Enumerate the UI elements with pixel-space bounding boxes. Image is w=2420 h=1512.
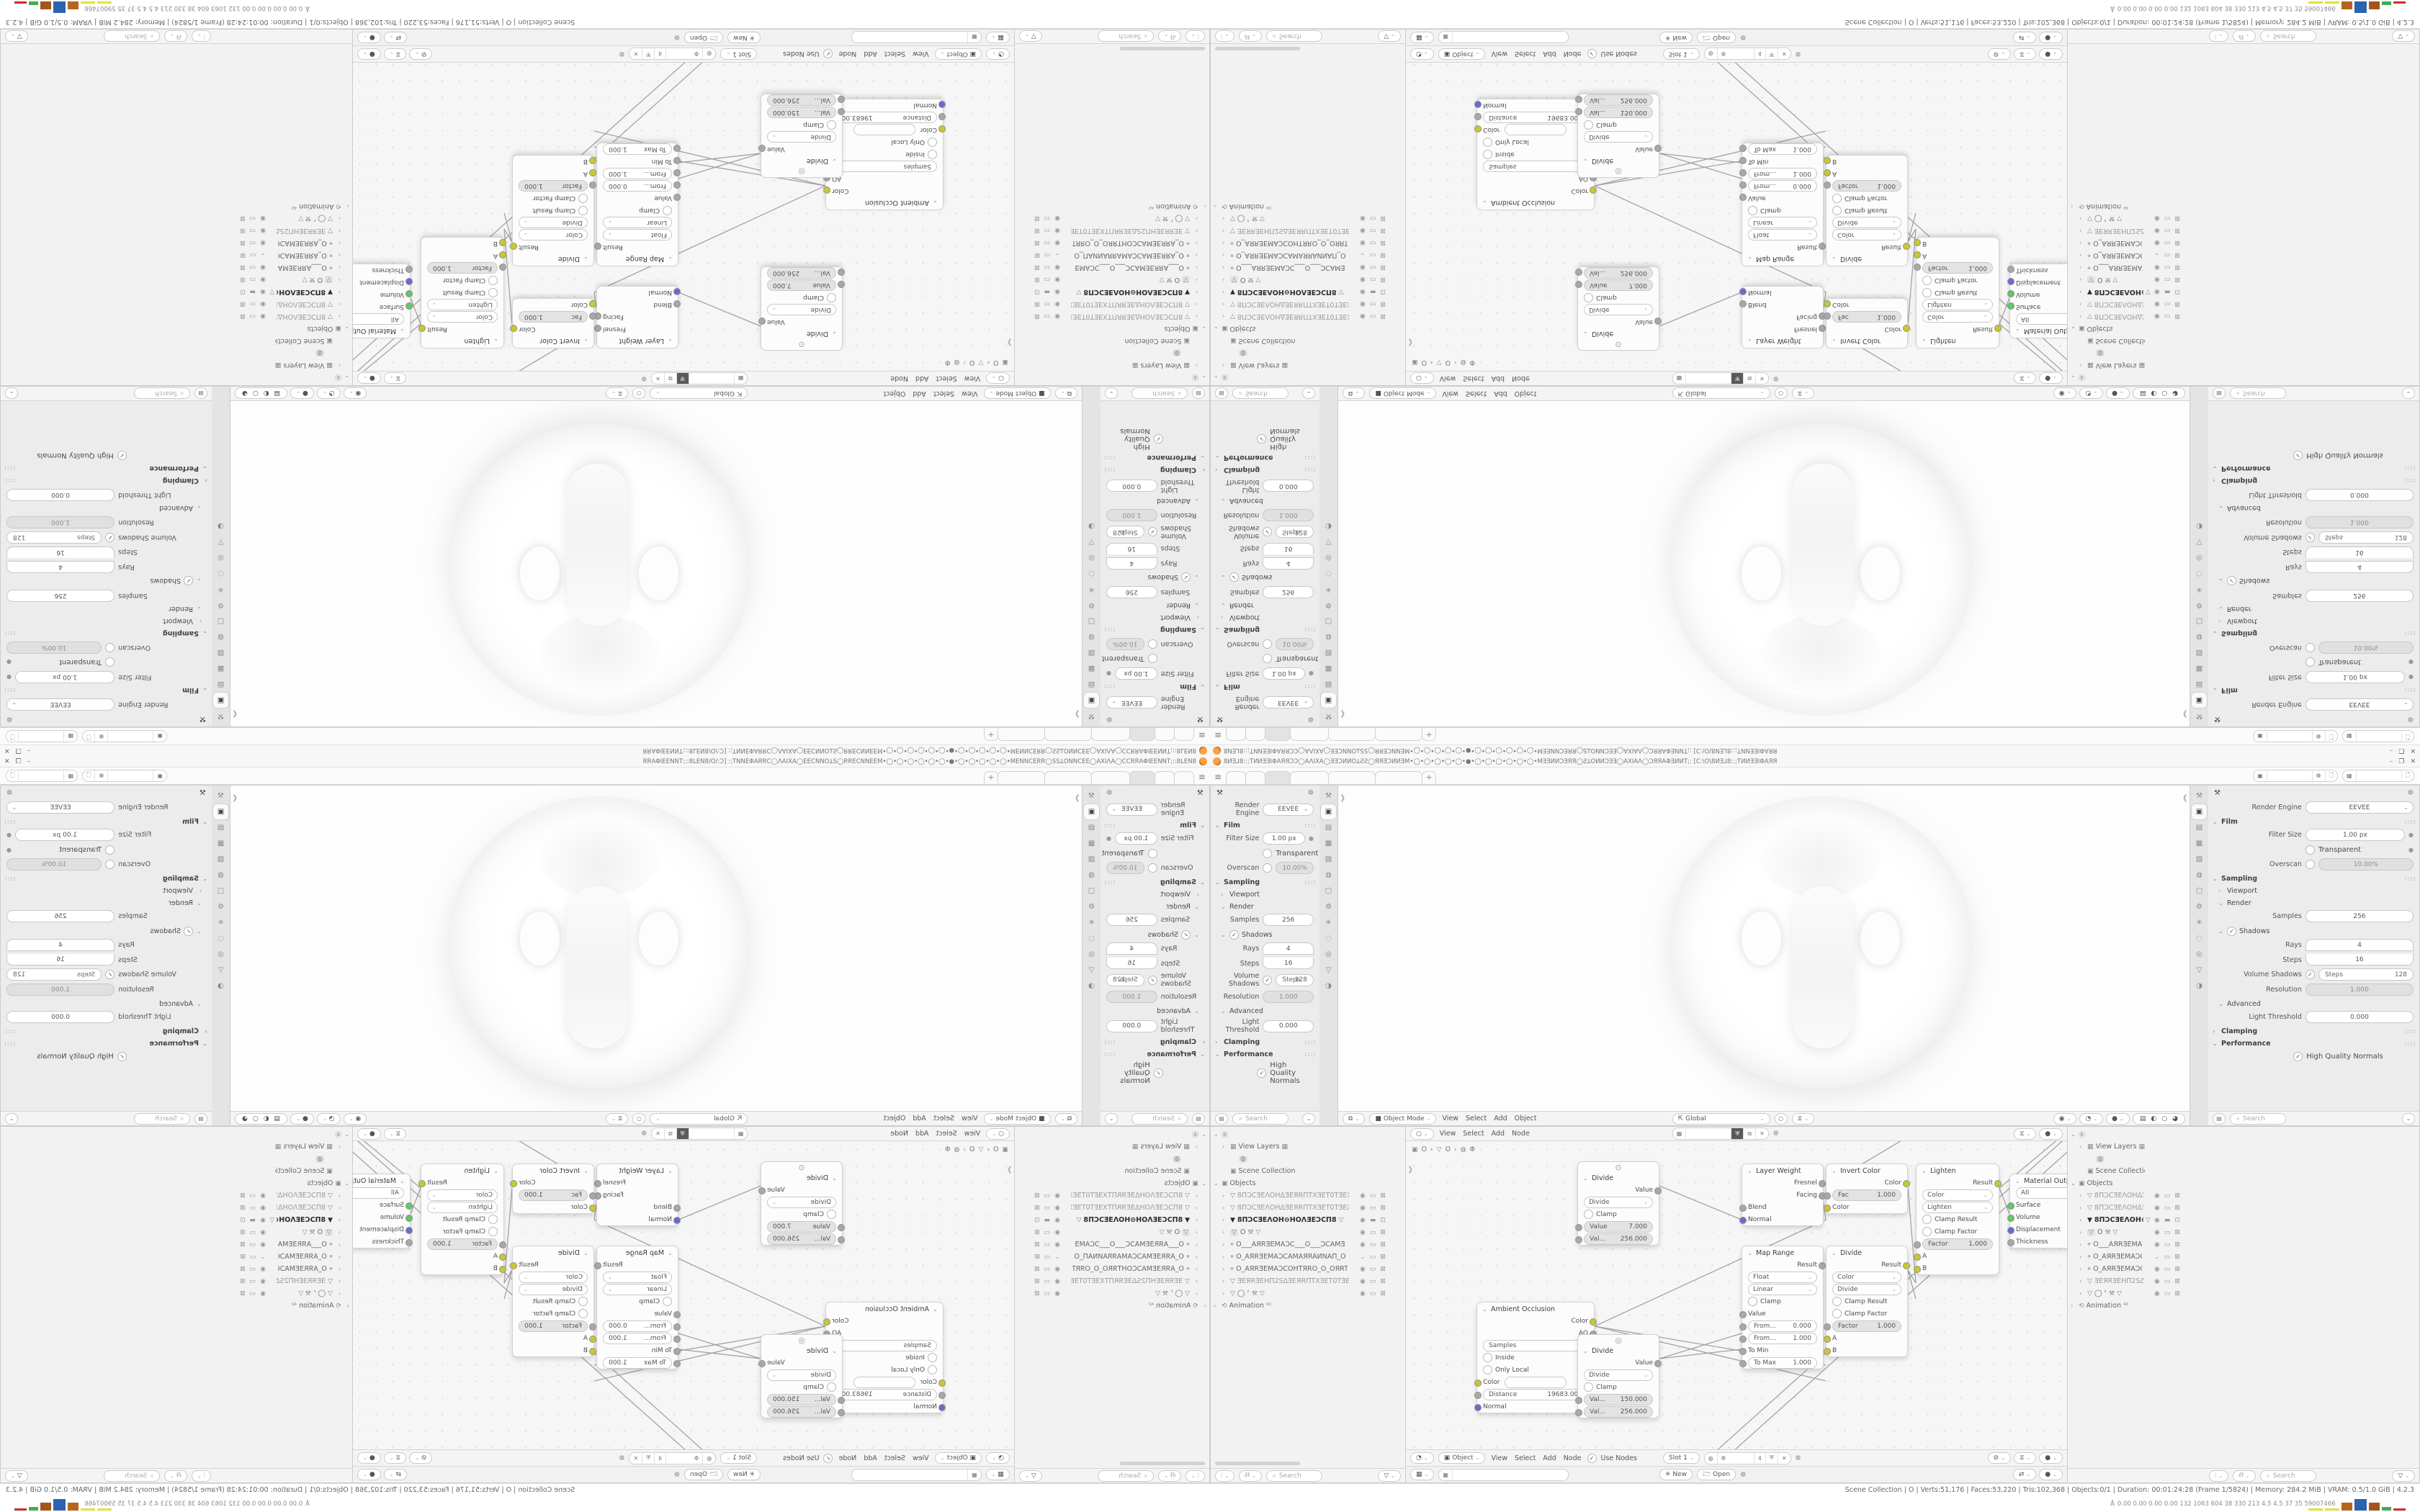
viewport-menu-add[interactable]: Add (911, 1115, 927, 1122)
shading-mode-icon[interactable]: ▤ (273, 390, 282, 397)
disable-viewport-icon[interactable]: ▭ (1044, 1192, 1051, 1200)
disable-render-icon[interactable]: ⊠ (2174, 1278, 2180, 1285)
expander-icon[interactable]: ⌄ (1221, 602, 1227, 608)
hide-eye-icon[interactable]: ◉ (1054, 264, 1060, 271)
outliner-search-input[interactable]: ⌕Search (104, 31, 160, 42)
users-count[interactable]: 4 (1754, 49, 1765, 60)
input-socket[interactable] (1739, 145, 1747, 153)
node-field[interactable]: Fac1.000 (519, 1189, 588, 1201)
node-field[interactable]: Fac1.000 (1832, 312, 1901, 323)
outliner-display-mode-dropdown[interactable]: ⫶⌄ (192, 1470, 211, 1482)
node-canvas[interactable]: ▣O›▽O›◍Φ ❱ ⊙⌄DivideValueDivide⌄ClampValu… (353, 1141, 1014, 1449)
viewport-menu-view[interactable]: View (1440, 1115, 1460, 1122)
properties-tab-9-icon[interactable]: ◌ (1321, 931, 1336, 946)
maximize-button[interactable]: ❐ (16, 747, 22, 755)
expander-icon[interactable]: ⌄ (1201, 1180, 1206, 1187)
hide-eye-icon[interactable]: ◉ (260, 1241, 266, 1248)
disable-render-icon[interactable]: ⊠ (240, 1241, 246, 1248)
outliner-display-mode-dropdown[interactable]: ⫶⌄ (1215, 31, 1234, 42)
node-map-range[interactable]: ⌄Map RangeResultFloat⌄Linear⌄ClampValueF… (596, 143, 678, 266)
workspace-tab-3[interactable] (1129, 728, 1155, 741)
input-socket[interactable] (1914, 252, 1921, 259)
node-checkbox[interactable] (1832, 1297, 1842, 1306)
blender-logo-icon[interactable] (1213, 747, 1221, 755)
outliner-row[interactable]: ›⟲Animation⁴² (1211, 200, 1405, 212)
expander-icon[interactable]: ⌄ (2218, 928, 2224, 935)
node-title[interactable]: ⌄Material Output (353, 1174, 410, 1187)
render-engine-select[interactable]: EEVEE⌄ (2305, 698, 2414, 711)
node-field[interactable]: Val...150.000 (767, 107, 836, 119)
input-socket[interactable] (1824, 158, 1831, 165)
viewport-menu-object[interactable]: Object (882, 1115, 907, 1122)
fake-user-shield-icon[interactable]: ⛨ (1765, 1453, 1778, 1464)
properties-tab-5-icon[interactable]: ◍ (1084, 629, 1099, 644)
Samples-field[interactable]: 256 (6, 590, 115, 602)
outliner-display-mode-dropdown[interactable]: ⫶⌄ (1186, 31, 1205, 42)
hide-eye-icon[interactable]: ◉ (1360, 228, 1366, 235)
node-field[interactable]: Samples1 (832, 1340, 937, 1351)
viewport-menu-add[interactable]: Add (1492, 1115, 1508, 1122)
outliner-display-mode-dropdown[interactable]: ⫶⌄ (2209, 1470, 2228, 1482)
Light Threshold-field[interactable]: 0.000 (1263, 1020, 1314, 1032)
Volume Shadows-field[interactable]: Steps128 (6, 968, 102, 981)
node-title[interactable]: ⌄Material Output (2010, 1174, 2067, 1187)
Light Threshold-field[interactable]: 0.000 (6, 1011, 115, 1023)
node-divide[interactable]: ⊙⌄DivideValueDivide⌄ClampValue7.000Val..… (1577, 1161, 1659, 1246)
scene-pin-icon[interactable]: ❁ (95, 770, 108, 781)
Overscan-checkbox[interactable] (2305, 860, 2315, 869)
disable-viewport-icon[interactable]: ▭ (1370, 1266, 1376, 1273)
hide-eye-icon[interactable]: ◉ (1360, 289, 1366, 296)
color-swatch-field[interactable] (854, 125, 916, 136)
disable-viewport-icon[interactable]: ▭ (2164, 228, 2171, 235)
expander-icon[interactable]: › (1222, 1143, 1228, 1150)
node-checkbox[interactable] (1483, 150, 1492, 159)
expander-icon[interactable]: ⌄ (2071, 1131, 2076, 1138)
node-field[interactable]: Val...256.000 (1584, 268, 1653, 279)
node-field[interactable]: Factor1.000 (519, 181, 588, 192)
expander-icon[interactable]: ⌄ (196, 928, 202, 935)
section-Film[interactable]: ⌄Film:::: (1, 815, 212, 827)
animate-dot-icon[interactable]: ● (6, 832, 12, 838)
viewport-toggle-0[interactable]: ◉⌄ (2053, 1113, 2077, 1125)
outliner-row[interactable]: ›⌖O___AЯRƎEMAƆC___O___ƆCAMƎ◉▭⊠ (1015, 261, 1209, 274)
disable-render-icon[interactable]: ⊠ (1380, 1241, 1386, 1248)
expander-icon[interactable]: › (1221, 614, 1227, 621)
node-menu-select[interactable]: Select (1461, 1130, 1485, 1138)
shading-mode-icon[interactable]: ◐ (2149, 390, 2158, 397)
disable-viewport-icon[interactable]: ▭ (2164, 1241, 2171, 1248)
expander-icon[interactable]: ⌄ (202, 465, 207, 472)
expander-icon[interactable]: › (2079, 1254, 2085, 1260)
expander-icon[interactable]: › (1192, 1241, 1198, 1248)
input-socket[interactable] (1824, 1348, 1831, 1355)
disable-viewport-icon[interactable]: ▭ (1370, 252, 1376, 259)
outliner-display-mode-dropdown[interactable]: ⫶⌄ (192, 31, 211, 42)
outliner-search-input[interactable]: ⌕Search (1098, 1470, 1154, 1482)
input-socket[interactable] (1575, 1409, 1582, 1416)
node-dropdown[interactable]: Divide⌄ (1832, 1284, 1901, 1295)
properties-display-icon[interactable]: ▤ (2213, 388, 2226, 400)
view-layer-selector[interactable]: ▦ 🗋 (6, 770, 78, 782)
section-Film[interactable]: ⌄Film:::: (1101, 681, 1209, 693)
node-layer-weight[interactable]: ⌄Layer WeightFresnelFacingBlendNormal (1742, 1164, 1824, 1226)
view-layer-new-icon[interactable]: 🗋 (2401, 770, 2414, 781)
outliner-row[interactable]: ◍ (1015, 1153, 1209, 1165)
node-canvas[interactable]: ▣O›▽O›◍Φ ❱ ⊙⌄DivideValueDivide⌄ClampValu… (1406, 1141, 2067, 1449)
viewport-toggle-2[interactable]: ●⌄ (290, 1113, 314, 1125)
expander-icon[interactable]: ⌄ (1214, 1180, 1219, 1187)
Overscan-field[interactable]: 10.00% (1106, 638, 1144, 650)
node-title[interactable]: ⌄Divide (1578, 1344, 1659, 1356)
collapse-icon[interactable]: ⌄ (1583, 1175, 1589, 1182)
Transparent-checkbox[interactable] (1148, 849, 1157, 858)
workspace-tab-1[interactable] (1174, 728, 1194, 741)
unlink-icon[interactable]: ✕ (1755, 373, 1768, 384)
node-checkbox[interactable] (1922, 276, 1932, 285)
disable-render-icon[interactable]: ⊠ (1034, 228, 1040, 235)
node-material-output[interactable]: ⌄Material OutputAll⌄SurfaceVolumeDisplac… (2009, 264, 2067, 338)
copy-icon[interactable]: ⧉ (1743, 373, 1755, 384)
hide-eye-icon[interactable]: ◉ (1054, 301, 1060, 308)
Samples-field[interactable]: 256 (1106, 586, 1157, 598)
outliner-filter-person-dropdown[interactable]: ⛜⌄ (2233, 31, 2256, 42)
shading-mode-icon[interactable]: ◕ (2171, 390, 2179, 397)
output-socket[interactable] (758, 1360, 766, 1367)
properties-tab-2-icon[interactable]: ▤ (1321, 677, 1336, 692)
disable-render-icon[interactable]: ⊠ (240, 1254, 246, 1261)
disable-render-icon[interactable]: ⊡ (1380, 289, 1386, 296)
subsection-Render[interactable]: ⌄Render (1211, 600, 1319, 612)
disable-render-icon[interactable]: ⊠ (1380, 1229, 1386, 1236)
outliner-row[interactable]: ◍ (2068, 1153, 2419, 1165)
disable-render-icon[interactable]: ⊠ (1034, 276, 1040, 284)
collapse-icon[interactable]: ⌄ (1747, 338, 1753, 344)
properties-tab-12-icon[interactable]: ◑ (213, 518, 228, 534)
outliner-filter-button[interactable]: ▽⌄ (1378, 1470, 1401, 1482)
properties-tab-0-icon[interactable]: ⚒ (213, 708, 228, 724)
disable-render-icon[interactable]: ⊠ (1380, 264, 1386, 271)
node-field[interactable]: From...1.000 (1748, 1333, 1817, 1344)
disable-viewport-icon[interactable]: ▭ (2164, 276, 2171, 284)
input-socket[interactable] (1824, 1336, 1831, 1343)
expander-icon[interactable]: › (1222, 313, 1228, 320)
disable-render-icon[interactable]: ⊡ (1380, 1217, 1386, 1224)
properties-tab-11-icon[interactable]: ▽ (2192, 534, 2207, 549)
expander-icon[interactable]: › (2071, 203, 2076, 210)
section-Performance[interactable]: ⌄Performance:::: (1211, 452, 1319, 464)
expander-icon[interactable]: › (1192, 1266, 1198, 1272)
disable-viewport-icon[interactable]: ▭ (2164, 1192, 2171, 1200)
node-material-output[interactable]: ⌄Material OutputAll⌄SurfaceVolumeDisplac… (353, 264, 411, 338)
expander-icon[interactable]: › (1222, 1192, 1228, 1199)
disable-viewport-icon[interactable]: ▭ (250, 1229, 256, 1236)
input-socket[interactable] (838, 1224, 845, 1231)
hide-eye-icon[interactable]: ◉ (1360, 1192, 1366, 1200)
node-material-output[interactable]: ⌄Material OutputAll⌄SurfaceVolumeDisplac… (353, 1174, 411, 1248)
shader-header-toggle[interactable]: ●⌄ (2039, 48, 2063, 60)
properties-tab-0-icon[interactable]: ⚒ (2192, 788, 2207, 804)
properties-tab-7-icon[interactable]: ⚙ (213, 598, 228, 613)
fake-user-shield-icon[interactable]: ⛨ (642, 49, 655, 60)
expander-icon[interactable]: ⌄ (2218, 1001, 2224, 1007)
collapse-icon[interactable]: ⌄ (2015, 1178, 2021, 1184)
subsection-Advanced[interactable]: ⌄Advanced (2208, 997, 2419, 1009)
fake-user-shield-icon[interactable]: ⛨ (642, 1453, 655, 1464)
shader-header-toggle[interactable]: ⊘⌄ (409, 1452, 432, 1464)
disable-render-icon[interactable]: ⊠ (1380, 1278, 1386, 1285)
viewport-menu-select[interactable]: Select (1464, 390, 1488, 397)
node-checkbox[interactable] (488, 1227, 498, 1236)
outliner-row[interactable]: ›⟲Animation⁴² (2068, 200, 2419, 212)
Overscan-checkbox[interactable] (105, 860, 115, 869)
properties-tab-1-icon[interactable]: ▣ (1084, 804, 1099, 819)
expander-icon[interactable]: ⌄ (1199, 454, 1205, 461)
properties-tab-7-icon[interactable]: ⚙ (1321, 598, 1336, 613)
checkbox-checked[interactable]: ✓ (184, 927, 193, 936)
disable-render-icon[interactable]: ⊡ (240, 289, 246, 296)
node-divide[interactable]: ⊙⌄DivideValueDivide⌄ClampValue7.000Val..… (761, 266, 843, 351)
scene-selector[interactable]: ▣ ❁ 🗋 (2253, 730, 2338, 742)
animate-dot-icon[interactable]: ● (6, 660, 12, 666)
input-socket[interactable] (1824, 313, 1831, 320)
section-Clamping[interactable]: ›Clamping:::: (2208, 475, 2419, 487)
input-socket[interactable] (2007, 1215, 2015, 1222)
input-socket[interactable] (1474, 114, 1482, 121)
input-socket[interactable] (1575, 1397, 1582, 1404)
node-field[interactable]: Factor1.000 (519, 1320, 588, 1332)
slot-dropdown[interactable]: Slot 1⌄ (1663, 1452, 1700, 1464)
collapse-icon[interactable]: ⌄ (583, 1250, 588, 1256)
properties-tab-7-icon[interactable]: ⚙ (2192, 598, 2207, 613)
outliner-row[interactable]: ›⌖O___AЯRƎEMAƆC___O___ƆCAMƎ◉▭⊠ (1211, 1238, 1405, 1251)
outliner-filter-person-dropdown[interactable]: ⛜⌄ (1158, 1470, 1181, 1482)
node-map-range[interactable]: ⌄Map RangeResultFloat⌄Linear⌄ClampValueF… (1742, 1246, 1824, 1369)
expander-icon[interactable]: › (1222, 276, 1228, 283)
properties-tab-7-icon[interactable]: ⚙ (1084, 598, 1099, 613)
node-checkbox[interactable] (1584, 293, 1593, 302)
hide-eye-icon[interactable]: ◉ (260, 1192, 266, 1200)
properties-tab-8-icon[interactable]: ✳ (1321, 915, 1336, 930)
outliner-row[interactable]: ›▽8ПƆCƎEΛOHΔƎEЯRПTXƎET0TƎEXT◉▭⊠ (1211, 1189, 1405, 1202)
pin-icon[interactable]: ❁ (1796, 50, 1801, 58)
input-socket[interactable] (1575, 96, 1582, 104)
input-socket[interactable] (589, 1205, 596, 1212)
outliner-row[interactable]: ◍ (2068, 347, 2419, 359)
checkbox-checked[interactable]: ✓ (184, 576, 193, 585)
disable-render-icon[interactable]: ⊠ (1034, 1241, 1040, 1248)
properties-tab-11-icon[interactable]: ▽ (213, 963, 228, 978)
collapse-icon[interactable]: ⌄ (1922, 338, 1927, 344)
output-socket[interactable] (1903, 1180, 1910, 1187)
node-field[interactable]: To Max1.000 (603, 144, 672, 156)
expander-icon[interactable]: › (335, 228, 341, 234)
shader-menu-view[interactable]: View (1489, 1454, 1509, 1462)
output-socket[interactable] (510, 243, 517, 251)
disable-viewport-icon[interactable]: ▭ (1370, 264, 1376, 271)
section-Performance[interactable]: ⌄Performance:::: (1211, 1048, 1319, 1060)
node-field[interactable]: Samples1 (832, 161, 937, 173)
properties-tab-0-icon[interactable]: ⚒ (213, 788, 228, 804)
shader-header-toggle[interactable]: ●⌄ (357, 48, 381, 60)
outliner-row[interactable]: ›⌖O___AЯRƎEMAƆC___O___ƆCAMƎ◉▭⊠ (1, 1238, 352, 1251)
collapse-icon[interactable]: ⌄ (1832, 256, 1837, 262)
outliner-row[interactable]: ⌄Ⓑ (1211, 1128, 1405, 1140)
section-Performance[interactable]: ⌄Performance:::: (1, 463, 212, 475)
node-menu-select[interactable]: Select (1461, 374, 1485, 382)
node-header-toggle[interactable]: ⧖⌄ (2014, 373, 2036, 384)
outliner-row[interactable]: ›▼8ПƆCƎEΛOH⊖HOΛƎEƆCП8▽◉▬⊡ (1015, 1214, 1209, 1226)
input-socket[interactable] (405, 1239, 413, 1246)
Samples-field[interactable]: 256 (2305, 910, 2414, 922)
node-canvas[interactable]: ▣O›▽O›◍Φ ❱ ⊙⌄DivideValueDivide⌄ClampValu… (353, 63, 1014, 371)
input-socket[interactable] (499, 1241, 506, 1248)
disable-viewport-icon[interactable]: ▭ (2164, 240, 2171, 247)
collapse-icon[interactable]: ⌄ (831, 330, 837, 337)
node-title[interactable]: ⌄Material Output (353, 325, 410, 338)
node-checkbox[interactable] (1922, 288, 1932, 297)
animate-dot-icon[interactable]: ● (6, 847, 12, 853)
input-socket[interactable] (1824, 301, 1831, 308)
mode-dropdown[interactable]: ■Object Mode⌄ (1369, 1113, 1436, 1125)
hide-eye-icon[interactable]: ◉ (1054, 1290, 1060, 1297)
Steps-field[interactable]: 16 (6, 954, 115, 966)
properties-tab-10-icon[interactable]: ◎ (213, 947, 228, 962)
node-field[interactable]: Distance19683.000 (832, 112, 937, 124)
input-socket[interactable] (1739, 1311, 1747, 1318)
material-browse-icon[interactable]: ◍ (703, 49, 715, 60)
orientation-dropdown[interactable]: ⇱Global⌄ (1672, 388, 1770, 400)
Overscan-field[interactable]: 10.00% (1276, 638, 1314, 650)
properties-tab-11-icon[interactable]: ▽ (213, 534, 228, 549)
Resolution-field[interactable]: 1.000 (1106, 991, 1157, 1003)
horizontal-scrollbar[interactable] (1120, 47, 1205, 50)
expander-icon[interactable]: › (1192, 252, 1198, 258)
collapse-icon[interactable]: ⌄ (831, 1175, 837, 1182)
input-socket[interactable] (499, 1254, 506, 1261)
expander-icon[interactable]: › (344, 203, 349, 210)
hide-eye-icon[interactable]: ◉ (2154, 1241, 2160, 1248)
input-socket[interactable] (1824, 170, 1831, 177)
collapse-icon[interactable]: ⌄ (667, 1250, 673, 1256)
Rays-field[interactable]: 4 (1106, 942, 1157, 955)
hide-eye-icon[interactable]: ◉ (260, 301, 266, 308)
new-image-button[interactable]: ✳ New (1659, 32, 1693, 43)
disable-viewport-icon[interactable]: ▬ (1044, 1217, 1051, 1224)
collapse-icon[interactable]: ⌄ (1583, 158, 1589, 164)
node-dropdown[interactable]: Color⌄ (1832, 230, 1901, 241)
material-browse-icon[interactable]: ◍ (1705, 49, 1717, 60)
outliner-row[interactable]: ⌄▣Objects (1015, 1177, 1209, 1189)
disable-viewport-icon[interactable]: ▭ (1044, 1229, 1051, 1236)
add-workspace-button[interactable]: + (984, 771, 998, 784)
collapse-icon[interactable]: ⌄ (2015, 328, 2021, 334)
shader-menu-node[interactable]: Node (838, 50, 859, 58)
properties-tab-9-icon[interactable]: ◌ (213, 566, 228, 581)
use-nodes-checkbox[interactable]: ✓ (1587, 50, 1597, 59)
view-layer-selector[interactable]: ▦ 🗋 (2342, 770, 2414, 782)
expander-icon[interactable]: › (335, 289, 341, 295)
input-socket[interactable] (1914, 240, 1921, 247)
expander-icon[interactable]: › (2218, 888, 2224, 894)
outliner-row[interactable]: ▣Scene Collection (1015, 1165, 1209, 1177)
output-socket[interactable] (510, 1180, 517, 1187)
expander-icon[interactable]: › (2079, 1217, 2085, 1223)
input-socket[interactable] (405, 1227, 413, 1234)
node-field[interactable]: Val...256.000 (767, 1406, 836, 1418)
outliner-row[interactable]: ›⟲Animation⁴² (1015, 1300, 1209, 1312)
node-menu-view[interactable]: View (1438, 374, 1458, 382)
scene-pin-icon[interactable]: ❁ (2312, 770, 2325, 781)
outliner-row[interactable]: ›⌖O___AЯRƎEMAƆC___O___ƆCAMƎ◉▭⊠ (2068, 1238, 2419, 1251)
output-socket[interactable] (758, 1187, 766, 1194)
properties-tab-10-icon[interactable]: ◎ (213, 550, 228, 565)
properties-tab-12-icon[interactable]: ◑ (1084, 518, 1099, 534)
node-dropdown[interactable]: Divide⌄ (1584, 132, 1653, 143)
image-header-toggle[interactable]: ⇄⌄ (2013, 32, 2036, 43)
node-lighten[interactable]: ⌄LightenResultColor⌄Lighten⌄Clamp Result… (1916, 237, 1999, 348)
expander-icon[interactable]: ⌄ (202, 630, 207, 636)
open-image-button[interactable]: 🗁 Open (1697, 32, 1736, 43)
expander-icon[interactable]: › (335, 1192, 341, 1199)
expander-icon[interactable]: ⌄ (1199, 879, 1205, 886)
disable-render-icon[interactable]: ⊠ (2174, 1266, 2180, 1273)
checkbox-checked[interactable]: ✓ (1181, 572, 1191, 582)
node-dropdown[interactable]: Color⌄ (427, 312, 498, 323)
subsection-Viewport[interactable]: ›Viewport (1211, 888, 1319, 900)
disable-render-icon[interactable]: ⊠ (2174, 1241, 2180, 1248)
texture-id-block[interactable]: ▦⛨⧉✕ (1672, 372, 1769, 384)
input-socket[interactable] (938, 1404, 946, 1411)
minimize-button[interactable]: – (27, 747, 31, 755)
shading-mode-icon[interactable]: ◐ (262, 1115, 271, 1122)
node-header-toggle[interactable]: ⧖⌄ (2014, 1128, 2036, 1140)
material-browse-icon[interactable]: ◍ (703, 1453, 715, 1464)
properties-tab-9-icon[interactable]: ◌ (2192, 931, 2207, 946)
outliner-filter-person-dropdown[interactable]: ⛜⌄ (1158, 31, 1181, 42)
node-field[interactable]: Samples1 (1483, 161, 1588, 173)
scene-selector[interactable]: ▣ ❁ 🗋 (82, 730, 167, 742)
outliner-row[interactable]: ›⌖O_AЯRƎEMAƆCOHTЯRO_O_OЯRTH◉▭⊠ (1, 237, 352, 249)
add-workspace-button[interactable]: + (984, 728, 998, 741)
disable-viewport-icon[interactable]: ▭ (1044, 215, 1051, 222)
material-id-block[interactable]: ◍Φ4⛨✕ (629, 1452, 716, 1464)
pin-icon[interactable]: ❁ (641, 1130, 647, 1138)
outliner-row[interactable]: ›▽ƎEЯRƎEHП2SΔƎEЯRПTXƎET0TƎEXT◉▭⊠ (1, 1275, 352, 1287)
subsection-Shadows[interactable]: ⌄✓Shadows (2208, 924, 2419, 937)
node-dropdown[interactable]: Linear⌄ (603, 1284, 672, 1295)
Steps-field[interactable]: 16 (1106, 543, 1157, 554)
outliner-row[interactable]: ›▽8ПƆCƎEΛOHΔƎEЯRПTXƎET0TƎEXT◉▭⊠ (1015, 1202, 1209, 1214)
disable-viewport-icon[interactable]: ▭ (2164, 264, 2171, 271)
disable-render-icon[interactable]: ⊠ (1034, 1266, 1040, 1273)
expander-icon[interactable]: › (335, 1229, 341, 1236)
disable-viewport-icon[interactable]: ▭ (2164, 1266, 2171, 1273)
disable-render-icon[interactable]: ⊠ (1034, 1205, 1040, 1212)
hide-eye-icon[interactable]: ◉ (2154, 1217, 2160, 1224)
input-socket[interactable] (2007, 266, 2015, 274)
mode-dropdown[interactable]: ■Object Mode⌄ (984, 1113, 1051, 1125)
hide-eye-icon[interactable]: ◉ (2154, 313, 2160, 320)
properties-tab-8-icon[interactable]: ✳ (213, 915, 228, 930)
hide-eye-icon[interactable]: ◉ (2154, 289, 2160, 296)
hide-eye-icon[interactable]: ◉ (1054, 1229, 1060, 1236)
disable-render-icon[interactable]: ⊡ (1034, 1217, 1040, 1224)
properties-tab-8-icon[interactable]: ✳ (2192, 915, 2207, 930)
subsection-Render[interactable]: ⌄Render (1101, 900, 1209, 912)
expander-icon[interactable]: › (1222, 228, 1228, 234)
image-name-field[interactable] (1452, 1470, 1568, 1480)
